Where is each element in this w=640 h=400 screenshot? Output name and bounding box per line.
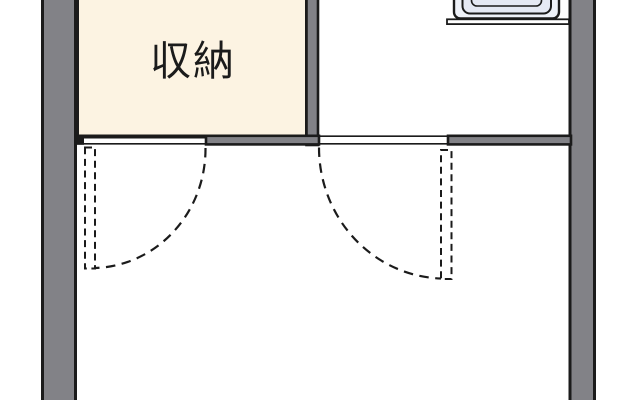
storage-room-label: 収納 [150,37,236,85]
door-leaf-right [441,150,452,279]
floor-plan-drawing: 収納 [0,0,640,400]
door-jamb-left [76,135,85,145]
wall-left [43,0,76,400]
wall-right [570,0,595,400]
wall-divider [307,0,319,145]
floor-plan: 収納 [0,0,640,400]
wall-mid-segment [206,136,319,145]
door-swing-arc-left [96,148,206,268]
door-swing-arc-right [319,148,441,279]
wall-kitchen-segment [448,136,571,145]
door-leaf-left [85,148,95,269]
kitchen-counter [447,19,569,24]
